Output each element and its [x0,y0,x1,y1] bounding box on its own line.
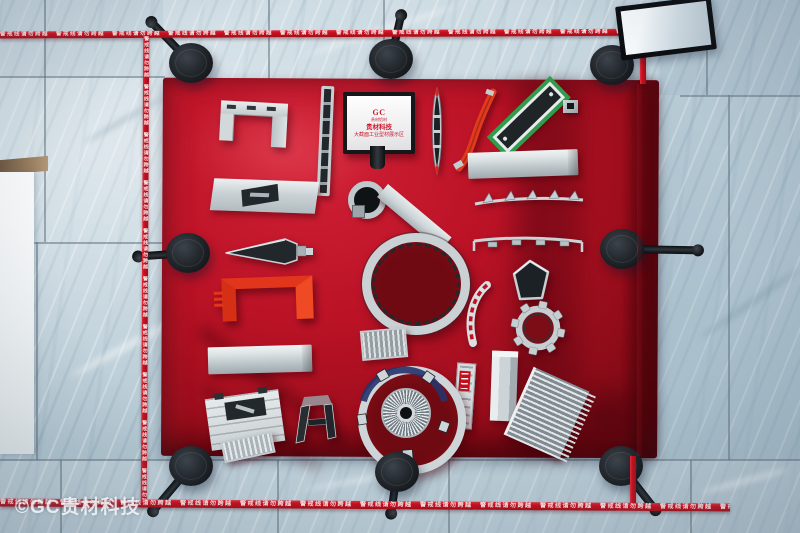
slotted-plate-profile [210,178,319,214]
plate-slot-bar [250,193,270,198]
arc-profile [460,282,490,346]
box-beam-profile [468,149,579,179]
stanchion-base [169,43,213,83]
sign-logo: GC [373,109,386,117]
block-slot [224,397,266,420]
marble-vein [699,266,800,341]
ribbed-strip-profile [360,327,408,361]
tile-grout-line [680,95,800,97]
tile-grout-line [0,76,165,78]
u-channel-slots [227,105,282,112]
plate-slot [241,184,278,207]
tube-foot [352,205,365,218]
warning-tape-right-lower [630,456,636,506]
tile-grout-line [728,95,730,460]
connector-block [563,100,578,113]
u-channel-profile [219,100,288,147]
sign-logo-subtext: 贵材铝材 [371,117,387,122]
sign-subtitle: 大截面工业型材展示区 [354,132,404,138]
finned-rail-profile [473,185,585,209]
keyhole-tube-profile [348,181,376,217]
block-nub [258,387,268,394]
gear-profile [509,299,567,357]
tile-grout-line [690,460,692,533]
stanchion-base [375,452,419,492]
ruler-red-label [458,371,470,392]
watermark: ©GC贵材科技 [15,492,141,519]
exhibition-photo: GC 贵材铝材 贵材科技 大截面工业型材展示区 [0,0,800,533]
a-frame-profile [296,395,336,445]
sign-stand-leg [370,146,385,169]
red-channel-profile [221,275,313,321]
white-wall-panel [0,172,34,454]
stanchion-base [169,446,213,486]
tile-grout-line [36,242,38,460]
canoe-profile [426,87,448,175]
heatsink-disc [381,388,431,438]
block-nub [214,393,224,400]
u-channel-arm [271,116,288,148]
exhibit-sign: GC 贵材铝材 贵材科技 大截面工业型材展示区 [343,92,415,154]
warning-tape-right-faint [637,84,642,456]
bar-profile [208,345,313,375]
tile-grout-line [448,460,450,533]
block-slot-bar [235,404,254,413]
marble-vein [83,96,163,145]
tab-rail-profile [472,233,584,259]
stanchion-base [166,233,210,273]
pentagon-profile [512,259,550,301]
carpet-fold-shadow [629,80,657,458]
sign-title: 贵材科技 [366,124,392,132]
tile-grout-line [268,0,270,90]
u-channel-arm [219,113,234,141]
wedge-profile [223,235,315,269]
ring-profile [362,233,470,335]
tile-grout-line [277,460,279,533]
stanchion-base [369,39,413,79]
